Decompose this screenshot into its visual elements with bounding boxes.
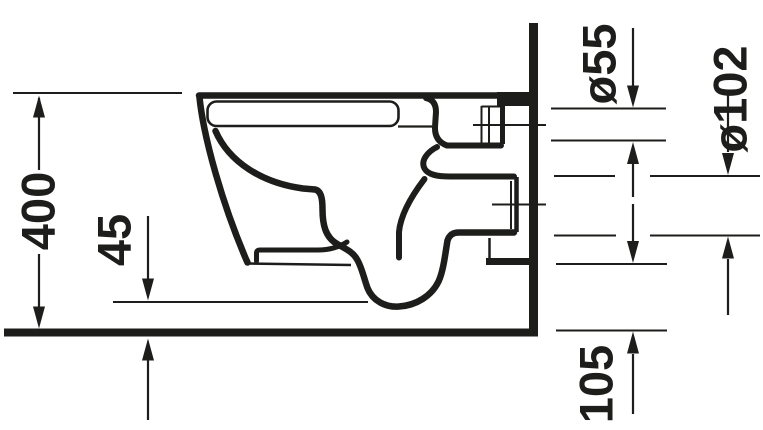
arrowhead-up: [722, 237, 734, 259]
dimension-45: 45: [88, 214, 369, 420]
dim-label-400: 400: [12, 172, 65, 250]
arrowhead-up: [627, 142, 639, 164]
arrowhead-up: [627, 332, 639, 354]
arrowhead-down: [627, 86, 639, 108]
outlet-top-edge: [423, 147, 514, 177]
arrowhead-up: [33, 96, 45, 118]
toilet-front-face: [200, 98, 248, 263]
dim-label-102: ø102: [704, 45, 757, 152]
technical-drawing-page: 400 45 ø55 105 ø102: [0, 0, 763, 430]
arrowhead-down: [722, 153, 734, 175]
bowl-and-trap-outline: [216, 131, 515, 307]
arrowhead-down: [33, 307, 45, 329]
arrowhead-down: [142, 279, 154, 301]
arrowhead-down: [627, 241, 639, 263]
toilet-dimension-drawing: 400 45 ø55 105 ø102: [0, 0, 763, 430]
dimension-400: 400: [12, 93, 183, 329]
rim-channel: [208, 102, 399, 127]
arrowhead-up: [142, 339, 154, 361]
dim-label-105: 105: [570, 345, 623, 423]
dim-label-45: 45: [88, 214, 141, 266]
bowl-back-wall: [399, 179, 425, 258]
dimension-55-and-105: ø55 105: [551, 24, 667, 424]
toilet-bottom-face: [248, 264, 351, 266]
dim-label-55: ø55: [573, 24, 626, 105]
